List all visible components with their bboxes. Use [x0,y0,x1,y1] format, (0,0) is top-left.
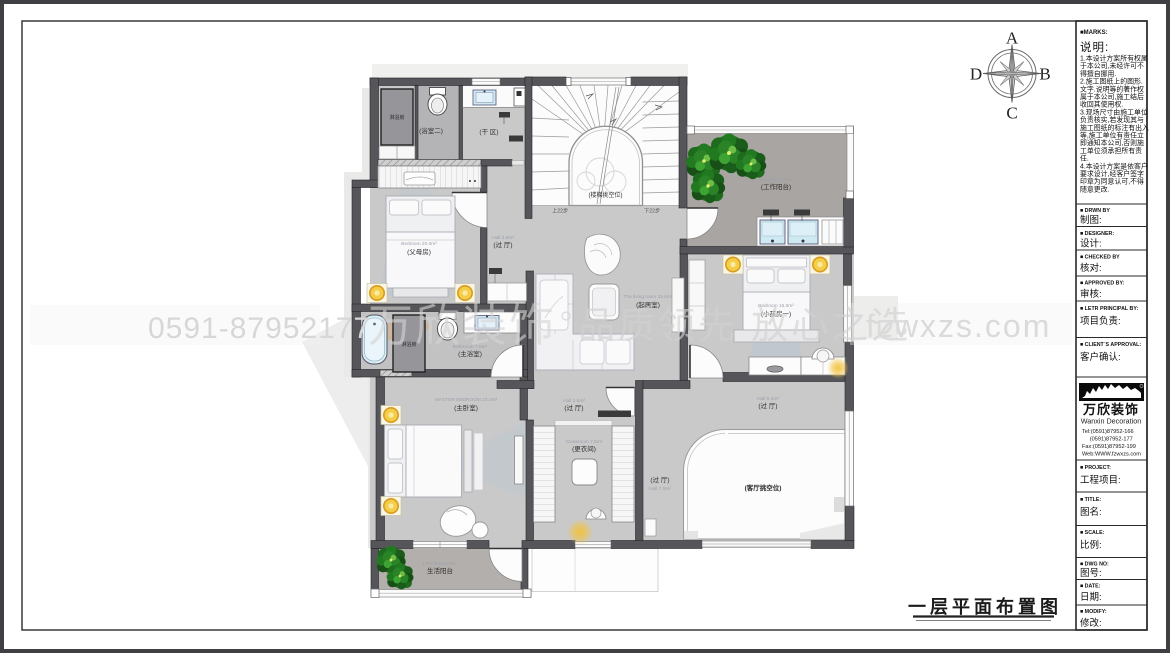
svg-text:(楼梯挑空位): (楼梯挑空位) [589,191,623,199]
svg-text:(过 厅): (过 厅) [758,401,777,410]
svg-text:(更衣间): (更衣间) [572,444,596,453]
svg-text:Fax:(0591)87952-199: Fax:(0591)87952-199 [1082,444,1136,450]
svg-text:2.施工图纸上的图形.: 2.施工图纸上的图形. [1080,77,1143,86]
svg-text:随意更改.: 随意更改. [1080,184,1110,193]
svg-text:日期:: 日期: [1080,592,1102,603]
svg-text:生活阳台: 生活阳台 [427,566,453,575]
svg-text:0591-87952177: 0591-87952177 [148,312,371,345]
svg-text:等,施工单位有责任立: 等,施工单位有责任立 [1080,131,1144,140]
svg-text:施工图纸的标注有出入: 施工图纸的标注有出入 [1080,123,1149,132]
svg-text:得擅自挪用.: 得擅自挪用. [1080,69,1116,78]
svg-text:■ MODIFY:: ■ MODIFY: [1080,609,1107,615]
svg-text:■ APPROVED BY:: ■ APPROVED BY: [1080,281,1125,287]
svg-text:Hall 2.5m²: Hall 2.5m² [563,398,585,404]
svg-text:A: A [1006,29,1019,48]
svg-text:D: D [970,65,982,84]
svg-text:属于本公司,施工结后: 属于本公司,施工结后 [1080,92,1144,101]
svg-text:B: B [1039,65,1050,84]
svg-text:审核:: 审核: [1080,288,1102,300]
svg-text:制图:: 制图: [1080,214,1102,226]
svg-text:万欣装饰: 万欣装饰 [368,300,556,351]
svg-text:(0591)87952-177: (0591)87952-177 [1082,437,1133,443]
svg-text:任.: 任. [1080,154,1089,163]
svg-text:LIFE BALCONY: LIFE BALCONY [423,561,458,567]
svg-text:印章为同意认可,不得: 印章为同意认可,不得 [1080,177,1144,186]
svg-text:(过 厅): (过 厅) [564,403,583,412]
svg-text:一层平面布置图: 一层平面布置图 [908,596,1062,617]
svg-text:C: C [1006,104,1017,123]
svg-text:MASTER BEDROOM 23.0m²: MASTER BEDROOM 23.0m² [435,397,498,403]
svg-text:(过 厅): (过 厅) [493,240,512,249]
svg-text:工单位须承担所有责: 工单位须承担所有责 [1080,146,1142,155]
svg-text:于本公司,未经许可不: 于本公司,未经许可不 [1080,61,1144,70]
svg-text:万欣装饰: 万欣装饰 [1082,402,1139,417]
svg-text:淋浴房: 淋浴房 [389,114,404,121]
svg-text:即通知本公司,否则施: 即通知本公司,否则施 [1080,138,1144,147]
svg-text:Cloakroom 7.5m²: Cloakroom 7.5m² [566,439,603,445]
svg-text:项目负责:: 项目负责: [1080,315,1121,327]
svg-text:Bedroom 20.0m²: Bedroom 20.0m² [401,241,437,247]
svg-text:■ SCALE:: ■ SCALE: [1080,530,1105,536]
svg-text:■ DATE:: ■ DATE: [1080,584,1101,590]
svg-text:Web:WWW.fzwxzs.com: Web:WWW.fzwxzs.com [1082,452,1141,458]
svg-text:fzwxzs.com: fzwxzs.com [866,308,1051,344]
svg-text:工程项目:: 工程项目: [1080,475,1121,486]
svg-text:Hall 7.0m²: Hall 7.0m² [649,486,671,492]
svg-text:客户确认:: 客户确认: [1080,351,1121,363]
svg-text:上22步: 上22步 [552,207,568,215]
svg-text:(浴室二): (浴室二) [419,126,443,135]
svg-text:设计:: 设计: [1080,238,1102,250]
svg-text:文字.说明等的著作权: 文字.说明等的著作权 [1080,84,1144,93]
svg-text:■ CLIENT`S APPROVAL:: ■ CLIENT`S APPROVAL: [1080,342,1141,348]
svg-text:(干 区): (干 区) [479,128,498,136]
svg-text:■ LETR PRINCIPAL BY:: ■ LETR PRINCIPAL BY: [1080,306,1138,312]
svg-text:(主卧室): (主卧室) [454,403,478,412]
svg-text:比例:: 比例: [1080,539,1102,551]
svg-text:下22步: 下22步 [644,208,660,215]
svg-text:■ CHECKED BY: ■ CHECKED BY [1080,255,1120,261]
svg-text:1.本设计方案所有权属: 1.本设计方案所有权属 [1080,54,1148,63]
svg-text:修改:: 修改: [1080,617,1102,629]
svg-text:■ DESIGNER:: ■ DESIGNER: [1080,231,1114,237]
svg-text:Hall 5.0m²: Hall 5.0m² [757,396,779,402]
svg-text:■MARKS:: ■MARKS: [1080,30,1108,36]
svg-text:说明:: 说明: [1080,40,1109,54]
svg-text:Balcony 12.0m²: Balcony 12.0m² [759,177,793,183]
svg-text:(过 厅): (过 厅) [650,475,669,484]
svg-text:4.本设计方案是依客户: 4.本设计方案是依客户 [1080,161,1148,170]
svg-text:■ DWG NO:: ■ DWG NO: [1080,562,1109,568]
svg-text:Hall 3.0m²: Hall 3.0m² [492,235,514,241]
svg-text:图号:: 图号: [1080,568,1102,579]
svg-text:3.现场尺寸由施工单位: 3.现场尺寸由施工单位 [1080,107,1148,116]
svg-text:要求设计,经客户签字: 要求设计,经客户签字 [1080,169,1144,178]
svg-text:图名:: 图名: [1080,506,1102,518]
svg-text:■ TITLE:: ■ TITLE: [1080,497,1101,503]
svg-text:收回其使用权.: 收回其使用权. [1080,100,1123,109]
svg-text:■ PROJECT:: ■ PROJECT: [1080,465,1111,471]
svg-text:(工作阳台): (工作阳台) [761,182,791,191]
svg-text:The living room 15.6m²: The living room 15.6m² [623,294,672,300]
svg-text:(父母房): (父母房) [407,247,431,256]
svg-text:品质领先 放心之选: 品质领先 放心之选 [578,305,911,346]
svg-text:Tel:(0591)87952-166: Tel:(0591)87952-166 [1082,429,1134,435]
svg-text:(客厅挑空位): (客厅挑空位) [745,483,782,492]
svg-text:Wanxin Decoration: Wanxin Decoration [1081,417,1141,426]
svg-text:核对:: 核对: [1080,262,1102,274]
svg-text:负责核实,若发现其与: 负责核实,若发现其与 [1080,115,1144,124]
svg-text:■ DRWN BY: ■ DRWN BY [1080,208,1110,214]
